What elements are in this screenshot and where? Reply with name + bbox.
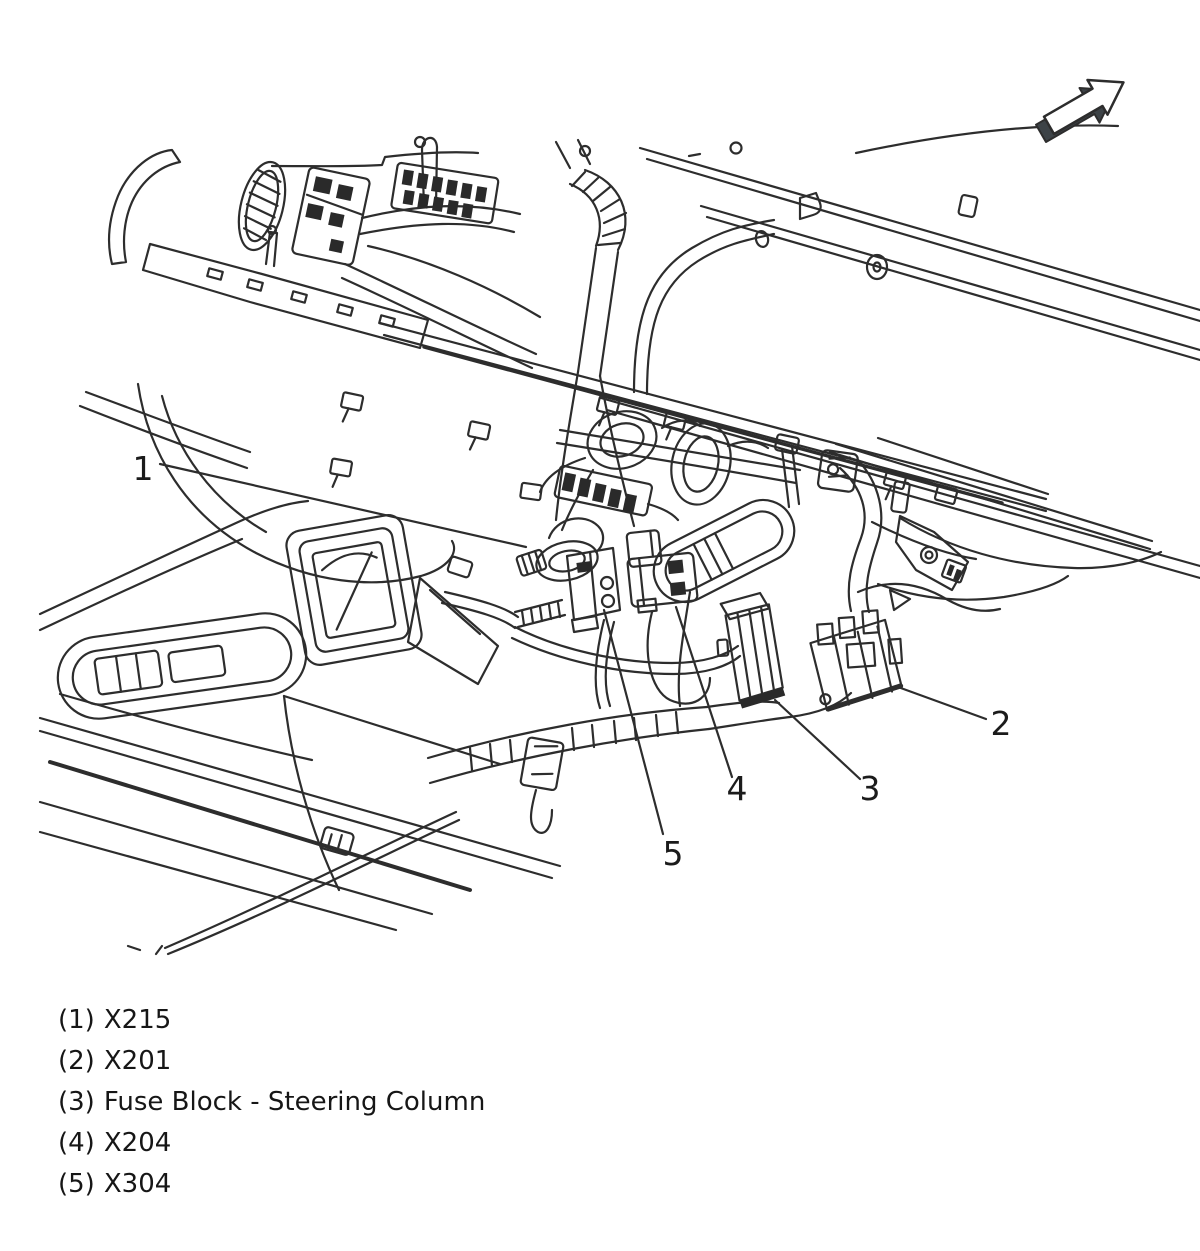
fuse-block-steering-column-art xyxy=(714,592,786,710)
legend-item-1: (1)X215 xyxy=(58,1000,485,1041)
legend-marker: (4) xyxy=(58,1128,95,1158)
callout-3: 3 xyxy=(775,700,881,808)
callout-5-leader-line xyxy=(604,610,663,834)
legend-label: Fuse Block - Steering Column xyxy=(104,1087,485,1117)
legend-item-3: (3)Fuse Block - Steering Column xyxy=(58,1082,485,1123)
service-manual-figure: 1 2 3 4 5 xyxy=(0,0,1200,1251)
callout-1-label: 1 xyxy=(133,449,154,488)
legend-marker: (1) xyxy=(58,1005,95,1035)
callout-5-label: 5 xyxy=(663,834,684,873)
legend: (1)X215 (2)X201 (3)Fuse Block - Steering… xyxy=(58,1000,485,1205)
callout-2-leader-line xyxy=(898,687,986,719)
legend-label: X215 xyxy=(104,1005,171,1035)
callout-3-label: 3 xyxy=(860,769,881,808)
legend-label: X204 xyxy=(104,1128,171,1158)
legend-marker: (2) xyxy=(58,1046,95,1076)
x204-connector-art xyxy=(624,527,698,613)
legend-label: X304 xyxy=(104,1169,171,1199)
legend-label: X201 xyxy=(104,1046,171,1076)
callout-2: 2 xyxy=(898,687,1012,743)
legend-item-4: (4)X204 xyxy=(58,1123,485,1164)
legend-marker: (5) xyxy=(58,1169,95,1199)
callout-4-leader-line xyxy=(676,607,732,777)
x201-connector-art xyxy=(808,609,904,711)
center-console-art xyxy=(40,501,560,954)
forward-direction-arrow-icon xyxy=(1031,65,1133,151)
callout-2-label: 2 xyxy=(991,704,1012,743)
floor-lower-harness-art xyxy=(428,612,851,833)
legend-item-2: (2)X201 xyxy=(58,1041,485,1082)
callout-4-label: 4 xyxy=(727,769,748,808)
steering-column-harness-art xyxy=(342,140,634,526)
legend-marker: (3) xyxy=(58,1087,95,1117)
legend-item-5: (5)X304 xyxy=(58,1164,485,1205)
dash-beam-art xyxy=(380,323,1046,511)
floor-panel-art xyxy=(580,125,1200,578)
right-floor-bracket-art xyxy=(830,438,1161,611)
